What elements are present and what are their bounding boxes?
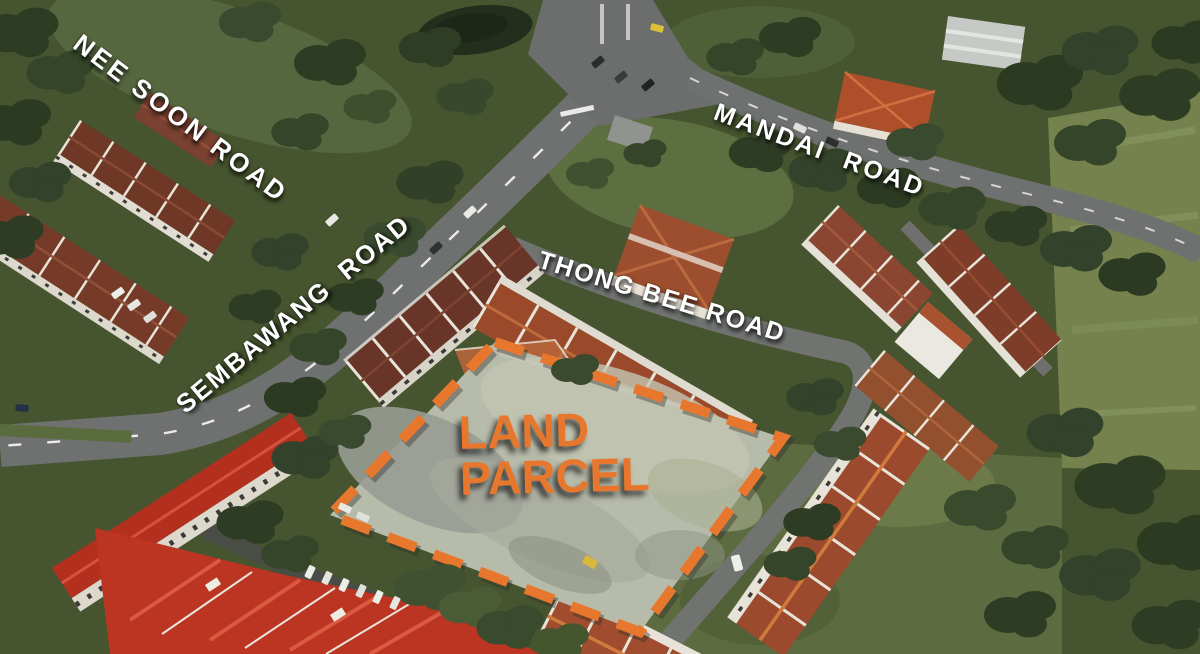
- aerial-photo: NEE SOON ROAD MANDAI ROAD SEMBAWANG ROAD…: [0, 0, 1200, 654]
- blue-car: [15, 404, 29, 412]
- land-parcel-label-line2: PARCEL: [459, 451, 650, 502]
- land-parcel-label: LAND PARCEL: [458, 405, 650, 502]
